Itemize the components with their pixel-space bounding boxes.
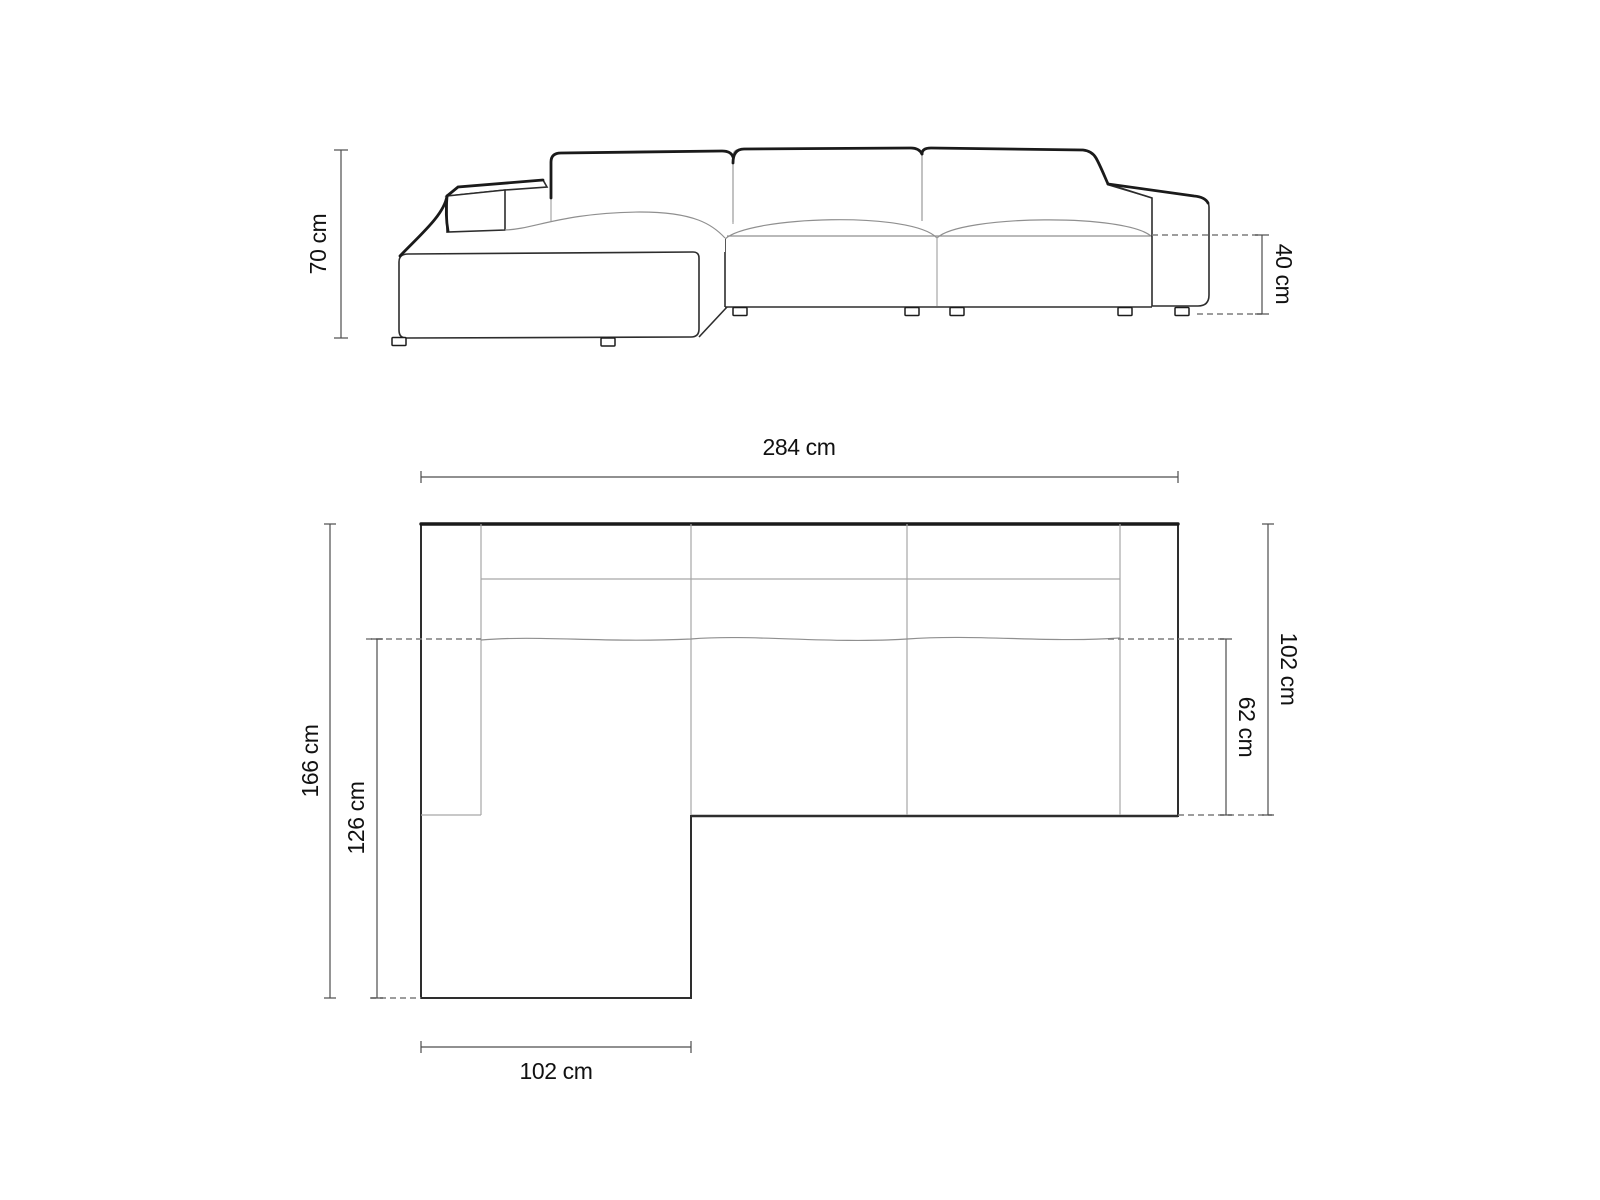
seat-cushions [725, 220, 1152, 241]
plan-interior-lines [421, 524, 1120, 815]
chaise-front-face [399, 252, 699, 338]
dim-right-depth: 102 cm [1262, 524, 1302, 815]
plan-outline [421, 524, 1178, 998]
front-view: 70 cm 40 cm [305, 148, 1297, 346]
sofa-base [699, 236, 1152, 337]
dim-total-depth-label: 166 cm [297, 724, 323, 797]
dim-right-depth-label: 102 cm [1276, 632, 1302, 705]
dim-seat-depth: 62 cm [1220, 639, 1260, 815]
left-armrest-block [446, 180, 547, 232]
dim-seat-height-label: 40 cm [1271, 244, 1297, 305]
sofa-dimension-diagram: 70 cm 40 cm [0, 0, 1600, 1200]
dim-chaise-inner-depth: 126 cm [343, 639, 383, 998]
dim-chaise-width: 102 cm [421, 1041, 691, 1084]
dim-total-depth: 166 cm [297, 524, 336, 998]
dim-height-label: 70 cm [305, 214, 331, 275]
dim-seat-depth-label: 62 cm [1234, 697, 1260, 758]
dim-height: 70 cm [305, 150, 348, 338]
plan-dashed-lines [366, 639, 1272, 998]
plan-view: 284 cm 166 cm 126 cm 102 cm [297, 434, 1302, 1084]
dim-total-width: 284 cm [421, 434, 1178, 483]
dim-chaise-inner-depth-label: 126 cm [343, 781, 369, 854]
dim-total-width-label: 284 cm [762, 434, 835, 460]
dim-chaise-width-label: 102 cm [519, 1058, 592, 1084]
diagram-canvas: 70 cm 40 cm [0, 0, 1600, 1200]
right-armrest [1108, 184, 1209, 306]
